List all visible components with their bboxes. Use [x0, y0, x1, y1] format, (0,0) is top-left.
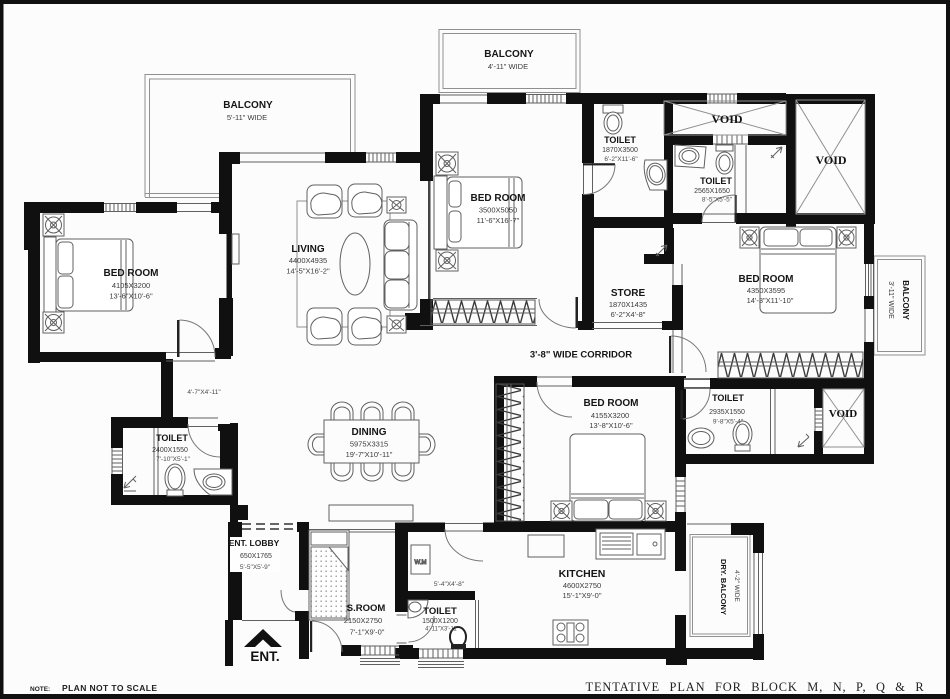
svg-text:5975X3315: 5975X3315 — [350, 440, 388, 449]
svg-text:ENT.: ENT. — [250, 649, 279, 664]
svg-text:VOID: VOID — [815, 153, 846, 167]
svg-text:STORE: STORE — [611, 288, 646, 299]
svg-text:3500X5050: 3500X5050 — [479, 206, 517, 215]
svg-text:DRY. BALCONY: DRY. BALCONY — [719, 559, 728, 615]
svg-text:1870X1435: 1870X1435 — [609, 300, 647, 309]
svg-text:BALCONY: BALCONY — [223, 100, 273, 111]
svg-text:BALCONY: BALCONY — [901, 280, 910, 320]
svg-text:4350X3595: 4350X3595 — [747, 286, 785, 295]
svg-text:8'-5"X5'-5": 8'-5"X5'-5" — [702, 197, 733, 204]
svg-text:LIVING: LIVING — [291, 244, 325, 255]
svg-text:4'-11"X3'-11": 4'-11"X3'-11" — [425, 627, 459, 633]
svg-text:11'-6"X16'-7": 11'-6"X16'-7" — [477, 216, 520, 225]
svg-text:4600X2750: 4600X2750 — [563, 581, 601, 590]
svg-text:2150X2750: 2150X2750 — [344, 616, 382, 625]
svg-text:NOTE:: NOTE: — [30, 686, 50, 693]
svg-text:4'-7"X4'-11": 4'-7"X4'-11" — [187, 389, 221, 396]
svg-text:BED ROOM: BED ROOM — [104, 268, 159, 279]
svg-text:PLAN NOT TO SCALE: PLAN NOT TO SCALE — [62, 683, 157, 693]
svg-text:4'-2" WIDE: 4'-2" WIDE — [733, 570, 740, 602]
svg-text:BED ROOM: BED ROOM — [584, 398, 639, 409]
svg-text:TOILET: TOILET — [712, 393, 744, 403]
svg-text:TOILET: TOILET — [423, 606, 457, 617]
svg-text:14'-5"X16'-2": 14'-5"X16'-2" — [286, 267, 330, 276]
svg-text:TOILET: TOILET — [156, 433, 188, 443]
svg-text:6'-2"X4'-8": 6'-2"X4'-8" — [611, 310, 646, 319]
svg-text:7'-1"X9'-0": 7'-1"X9'-0" — [350, 628, 385, 637]
svg-text:13'-8"X10'-6": 13'-8"X10'-6" — [589, 421, 633, 430]
svg-text:6'-2"X11'-6": 6'-2"X11'-6" — [604, 156, 638, 163]
svg-text:W.M: W.M — [415, 560, 427, 566]
svg-text:VOID: VOID — [711, 112, 742, 126]
svg-text:5'-5"X5'-9": 5'-5"X5'-9" — [240, 564, 271, 571]
svg-text:650X1765: 650X1765 — [240, 553, 272, 560]
svg-text:4105X3200: 4105X3200 — [112, 281, 150, 290]
svg-text:BED ROOM: BED ROOM — [471, 193, 526, 204]
svg-text:2935X1550: 2935X1550 — [709, 409, 745, 416]
svg-text:DINING: DINING — [352, 427, 387, 438]
svg-text:13'-6"X10'-6": 13'-6"X10'-6" — [109, 292, 153, 301]
svg-text:4'-11" WIDE: 4'-11" WIDE — [488, 62, 528, 71]
svg-text:2400X1550: 2400X1550 — [152, 447, 188, 454]
svg-text:14'-3"X11'-10": 14'-3"X11'-10" — [747, 296, 794, 305]
svg-text:7'-10"X5'-1": 7'-10"X5'-1" — [156, 456, 191, 463]
svg-text:9'-8"X5'-4": 9'-8"X5'-4" — [713, 419, 744, 426]
svg-text:2565X1650: 2565X1650 — [694, 188, 730, 195]
svg-text:1870X3500: 1870X3500 — [602, 147, 638, 154]
svg-text:3'-8" WIDE CORRIDOR: 3'-8" WIDE CORRIDOR — [530, 350, 632, 361]
svg-text:ENT. LOBBY: ENT. LOBBY — [229, 538, 280, 548]
svg-text:BED ROOM: BED ROOM — [739, 274, 794, 285]
svg-text:5'-4"X4'-8": 5'-4"X4'-8" — [434, 581, 465, 588]
svg-text:5'-11" WIDE: 5'-11" WIDE — [227, 113, 267, 122]
svg-text:TENTATIVE PLAN FOR BLOCK M, N,: TENTATIVE PLAN FOR BLOCK M, N, P, Q & R — [585, 680, 924, 694]
svg-text:19'-7"X10'-11": 19'-7"X10'-11" — [346, 450, 393, 459]
svg-text:4155X3200: 4155X3200 — [591, 411, 629, 420]
svg-text:S.ROOM: S.ROOM — [347, 603, 386, 614]
svg-text:15'-1"X9'-0": 15'-1"X9'-0" — [562, 591, 601, 600]
svg-text:4400X4935: 4400X4935 — [289, 256, 327, 265]
svg-text:BALCONY: BALCONY — [484, 49, 534, 60]
svg-text:TOILET: TOILET — [700, 176, 732, 186]
svg-text:TOILET: TOILET — [604, 135, 636, 145]
svg-text:3'-11" WIDE: 3'-11" WIDE — [887, 281, 894, 319]
svg-text:1500X1200: 1500X1200 — [422, 618, 458, 625]
svg-text:KITCHEN: KITCHEN — [559, 568, 606, 580]
svg-text:VOID: VOID — [829, 408, 858, 420]
